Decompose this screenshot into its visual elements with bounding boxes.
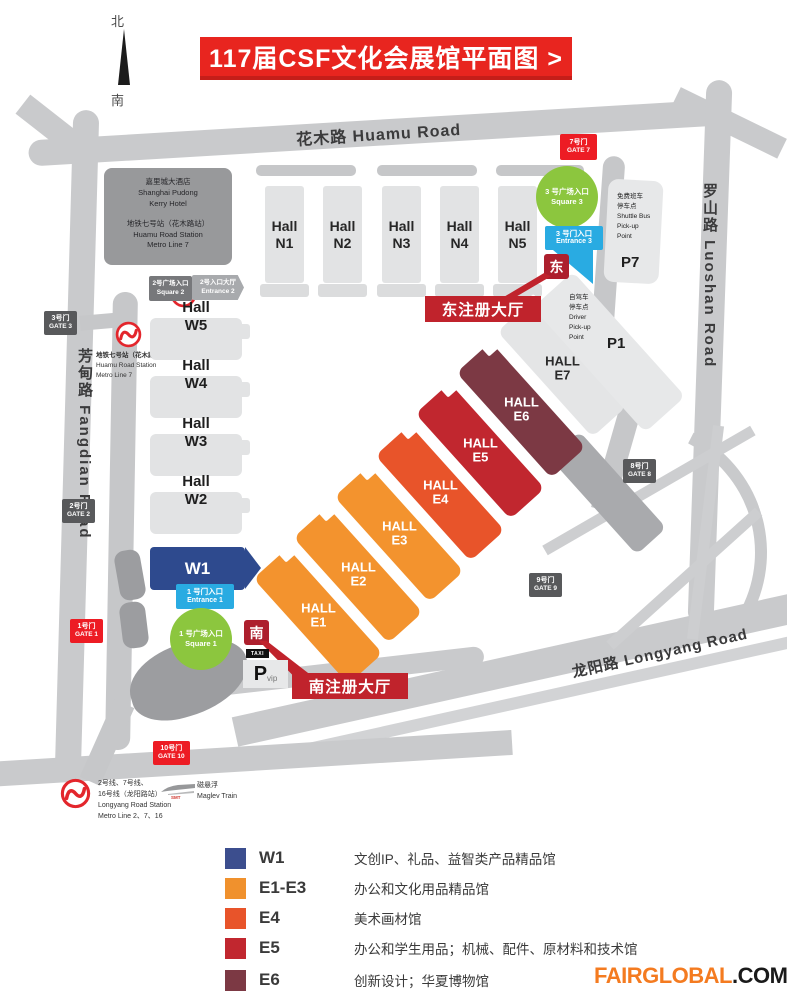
legend-row-w1: W1 文创IP、礼品、益智类产品精品馆 xyxy=(225,847,556,869)
square-1-cn: 1 号广场入口 xyxy=(179,629,223,640)
hall-n1-word: Hall xyxy=(272,218,298,234)
brand-logo-orange: FAIRGLOBAL xyxy=(594,963,732,988)
hall-w3-label: HallW3 xyxy=(150,415,242,451)
hotel-metro-en1: Huamu Road Station xyxy=(104,230,232,241)
gate-7-en: GATE 7 xyxy=(567,147,590,156)
gate-10-badge: 10号门GATE 10 xyxy=(153,741,190,765)
hall-w5-tab xyxy=(242,324,250,339)
hall-e1-code: E1 xyxy=(301,616,336,630)
legend-swatch-w1 xyxy=(225,848,246,869)
shuttle-bus-note: 免费班车 停车点 Shuttle Bus Pick-up Point xyxy=(617,192,650,242)
gate-3-cn: 3号门 xyxy=(49,314,72,323)
square-3-en: Square 3 xyxy=(551,197,583,208)
compass-arrow xyxy=(118,29,130,85)
hall-n3: HallN3 xyxy=(382,186,421,283)
legend-row-e6: E6 创新设计；华夏博物馆 xyxy=(225,969,489,991)
hall-e2-word: HALL xyxy=(341,561,376,575)
hall-n1-code: N1 xyxy=(272,235,298,251)
hall-n3-foot xyxy=(377,284,426,297)
hall-e4-code: E4 xyxy=(423,493,458,507)
hall-w3-word: Hall xyxy=(150,415,242,433)
hall-w5-code: W5 xyxy=(150,317,242,335)
hall-w2-word: Hall xyxy=(150,473,242,491)
vip-parking-sub: vip xyxy=(267,674,277,683)
hall-e6-word: HALL xyxy=(504,396,539,410)
southwest-island-stub-2 xyxy=(118,601,149,650)
hotel-name-en1: Shanghai Pudong xyxy=(104,188,232,199)
hall-e2-notch xyxy=(317,500,339,522)
gate-9-badge: 9号门GATE 9 xyxy=(529,573,562,597)
compass-north-label: 北 xyxy=(111,11,124,30)
south-registration-label: 南注册大厅 xyxy=(292,673,408,699)
gate-1-en: GATE 1 xyxy=(75,631,98,640)
taxi-badge: TAXI xyxy=(246,649,269,658)
hotel-metro-cn: 地铁七号站（花木路站） xyxy=(104,219,232,230)
maglev-cn: 磁悬浮 xyxy=(197,781,237,792)
square-1-en: Square 1 xyxy=(185,639,217,650)
east-registration-label: 东注册大厅 xyxy=(425,296,541,322)
kerry-hotel-block: 嘉里城大酒店 Shanghai Pudong Kerry Hotel 地铁七号站… xyxy=(104,168,232,265)
entrance-3-en: Entrance 3 xyxy=(556,238,592,247)
hall-e7-code: E7 xyxy=(545,369,580,383)
hall-n4-code: N4 xyxy=(447,235,473,251)
hall-w1-code: W1 xyxy=(185,559,211,579)
hall-n2: HallN2 xyxy=(323,186,362,283)
page-title[interactable]: 117届CSF文化会展馆平面图 > xyxy=(200,37,572,80)
gate-3-en: GATE 3 xyxy=(49,323,72,332)
driver-pickup-note: 自驾车 停车点 Driver Pick-up Point xyxy=(569,293,591,343)
legend-code-w1: W1 xyxy=(259,848,331,868)
hall-w3-tab xyxy=(242,440,250,455)
hall-n2-code: N2 xyxy=(330,235,356,251)
gate-1-badge: 1号门GATE 1 xyxy=(70,619,103,643)
hall-e1-word: HALL xyxy=(301,602,336,616)
hall-w4-tab xyxy=(242,382,250,397)
gate-7-badge: 7号门GATE 7 xyxy=(560,134,597,160)
gate-8-badge: 8号门GATE 8 xyxy=(623,459,656,483)
legend-row-e1e3: E1-E3 办公和文化用品精品馆 xyxy=(225,877,489,899)
hall-n4: HallN4 xyxy=(440,186,479,283)
hall-w3-code: W3 xyxy=(150,433,242,451)
hall-e2-code: E2 xyxy=(341,575,376,589)
venue-map-screen: 北 南 117届CSF文化会展馆平面图 > 花木路 Huamu Road 罗山路… xyxy=(0,0,787,1008)
driver-note-line1: 自驾车 xyxy=(569,293,591,303)
legend-swatch-e4 xyxy=(225,908,246,929)
hall-w4-label: HallW4 xyxy=(150,357,242,393)
legend-row-e5: E5 办公和学生用品；机械、配件、原材料和技术馆 xyxy=(225,937,638,959)
hall-e4-notch xyxy=(399,418,421,440)
driver-note-line4: Pick-up xyxy=(569,323,591,333)
gate-2-badge: 2号门GATE 2 xyxy=(62,499,95,523)
p1-code: P1 xyxy=(607,335,625,352)
maglev-smt-text: SMT xyxy=(171,795,181,800)
hall-n5-word: Hall xyxy=(505,218,531,234)
gate-8-en: GATE 8 xyxy=(628,471,651,480)
hotel-metro-en2: Metro Line 7 xyxy=(104,240,232,251)
legend-desc-e4: 美术画材馆 xyxy=(354,908,422,928)
hall-e3-notch xyxy=(358,459,380,481)
vip-parking: P vip xyxy=(243,660,288,688)
driver-note-line2: 停车点 xyxy=(569,303,591,313)
hall-w4-word: Hall xyxy=(150,357,242,375)
legend-swatch-e1e3 xyxy=(225,878,246,899)
gate-10-cn: 10号门 xyxy=(158,744,185,753)
legend-desc-e5: 办公和学生用品；机械、配件、原材料和技术馆 xyxy=(354,938,638,958)
hall-e7-word: HALL xyxy=(545,355,580,369)
hall-w5-word: Hall xyxy=(150,299,242,317)
shuttle-note-line1: 免费班车 xyxy=(617,192,650,202)
hotel-name-en2: Kerry Hotel xyxy=(104,199,232,210)
hall-e3-code: E3 xyxy=(382,534,417,548)
hall-e4-word: HALL xyxy=(423,479,458,493)
entrance-1-en: Entrance 1 xyxy=(187,597,223,606)
gate-3-badge: 3号门GATE 3 xyxy=(44,311,77,335)
entrance-2-cn: 2号入口大厅 xyxy=(200,279,236,287)
brand-logo-black: .COM.CN xyxy=(732,963,787,988)
entrance-2-badge: 2号入口大厅Entrance 2 xyxy=(192,275,244,300)
luoshan-road-label: 罗山路 Luoshan Road xyxy=(699,183,720,368)
square-3-cn: 3 号广场入口 xyxy=(545,187,589,198)
hall-e5-code: E5 xyxy=(463,451,498,465)
legend-code-e6: E6 xyxy=(259,970,331,990)
vip-parking-p: P xyxy=(254,663,267,686)
shuttle-note-line2: 停车点 xyxy=(617,202,650,212)
square-2-badge: 2号广场入口Square 2 xyxy=(149,276,192,301)
driver-note-line3: Driver xyxy=(569,313,591,323)
north-hall-canopy-1 xyxy=(256,165,356,176)
legend-code-e4: E4 xyxy=(259,908,331,928)
entrance-1-badge: 1 号门入口Entrance 1 xyxy=(176,584,234,609)
metro-bottom-line4: Metro Line 2、7、16 xyxy=(98,812,171,823)
hall-e6-notch xyxy=(480,335,502,357)
hotel-name-cn: 嘉里城大酒店 xyxy=(104,177,232,188)
brand-logo[interactable]: FAIRGLOBAL.COM.CN xyxy=(594,963,787,989)
legend-row-e4: E4 美术画材馆 xyxy=(225,907,422,929)
gate-8-cn: 8号门 xyxy=(628,462,651,471)
hall-w4-code: W4 xyxy=(150,375,242,393)
hall-e1-notch xyxy=(277,541,299,563)
entrance-2-en: Entrance 2 xyxy=(201,288,234,296)
driver-note-line5: Point xyxy=(569,333,591,343)
hall-n4-word: Hall xyxy=(447,218,473,234)
hall-n1-foot xyxy=(260,284,309,297)
gate-2-en: GATE 2 xyxy=(67,511,90,520)
hall-n5-code: N5 xyxy=(505,235,531,251)
legend-swatch-e5 xyxy=(225,938,246,959)
entrance-1-cn: 1 号门入口 xyxy=(187,587,223,596)
gate-7-cn: 7号门 xyxy=(567,138,590,147)
shuttle-note-line3: Shuttle Bus xyxy=(617,212,650,222)
p7-code: P7 xyxy=(621,254,639,271)
hall-e5-word: HALL xyxy=(463,437,498,451)
maglev-icon: SMT xyxy=(160,782,196,805)
metro-icon-longyang xyxy=(60,778,91,814)
maglev-note: 磁悬浮 Maglev Train xyxy=(197,781,237,803)
gate-9-cn: 9号门 xyxy=(534,576,557,585)
shuttle-note-line4: Pick-up xyxy=(617,222,650,232)
shuttle-note-line5: Point xyxy=(617,232,650,242)
compass-south-label: 南 xyxy=(111,90,124,109)
hall-n3-code: N3 xyxy=(389,235,415,251)
hall-w2-label: HallW2 xyxy=(150,473,242,509)
square-1-circle: 1 号广场入口Square 1 xyxy=(170,608,232,670)
hall-e3-word: HALL xyxy=(382,520,417,534)
maglev-en: Maglev Train xyxy=(197,792,237,803)
hall-n1: HallN1 xyxy=(265,186,304,283)
hall-w2-tab xyxy=(242,498,250,513)
hall-n2-foot xyxy=(318,284,367,297)
hall-n3-word: Hall xyxy=(389,218,415,234)
entrance-3-badge: 3 号门入口Entrance 3 xyxy=(545,226,603,250)
square-2-en: Square 2 xyxy=(157,289,184,297)
gate-9-en: GATE 9 xyxy=(534,585,557,594)
legend-code-e1e3: E1-E3 xyxy=(259,878,331,898)
square-3-circle: 3 号广场入口Square 3 xyxy=(536,166,598,228)
hall-n5: HallN5 xyxy=(498,186,537,283)
north-hall-canopy-2 xyxy=(377,165,477,176)
hall-w5-label: HallW5 xyxy=(150,299,242,335)
hall-e6-code: E6 xyxy=(504,410,539,424)
gate-2-cn: 2号门 xyxy=(67,502,90,511)
gate-10-en: GATE 10 xyxy=(158,753,185,762)
huamu-road-label: 花木路 Huamu Road xyxy=(295,116,461,150)
square-2-cn: 2号广场入口 xyxy=(152,280,188,288)
hall-w2-code: W2 xyxy=(150,491,242,509)
legend-desc-e1e3: 办公和文化用品精品馆 xyxy=(354,878,489,898)
metro-icon-fangdian xyxy=(115,321,142,353)
hall-e5-notch xyxy=(439,376,461,398)
entrance-3-cn: 3 号门入口 xyxy=(556,229,592,238)
legend-swatch-e6 xyxy=(225,970,246,991)
legend-code-e5: E5 xyxy=(259,938,331,958)
legend-desc-e6: 创新设计；华夏博物馆 xyxy=(354,970,489,990)
hall-n2-word: Hall xyxy=(330,218,356,234)
gate-1-cn: 1号门 xyxy=(75,622,98,631)
legend-desc-w1: 文创IP、礼品、益智类产品精品馆 xyxy=(354,848,556,868)
